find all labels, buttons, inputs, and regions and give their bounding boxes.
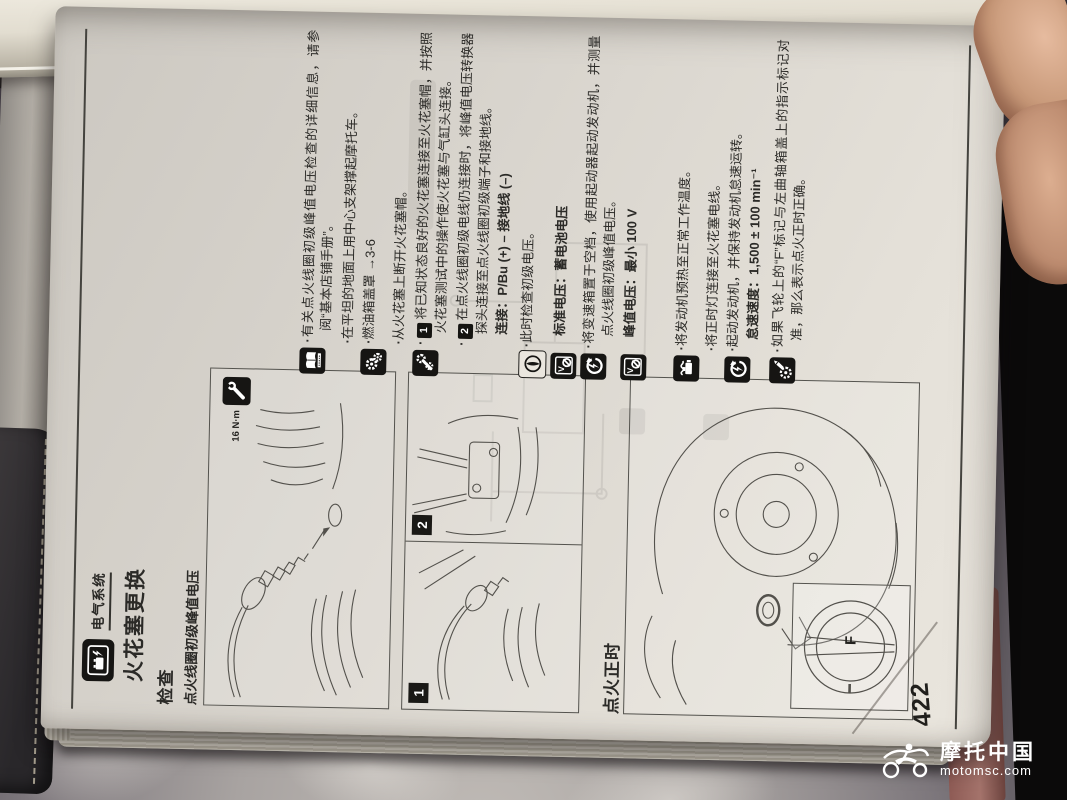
step-text: ·起动发动机，并保持发动机怠速运转。 怠速速度：1,500 ± 100 min⁻…	[724, 38, 772, 352]
step-icon-slot	[517, 347, 547, 379]
figure-spark-test-panels: 1 2	[401, 372, 586, 714]
step-icon-slot	[411, 345, 450, 377]
step-text: ·如果飞轮上的“F”标记与左曲轴箱盖上的指示标记对准，那么表示点火正时正确。	[769, 39, 812, 353]
panel-number-1: 1	[408, 683, 428, 703]
multimeter-icon: V	[550, 353, 577, 380]
step-icon-slot	[579, 348, 617, 380]
gears-icon	[360, 349, 387, 376]
procedure-step: ·燃油箱盖罩 →3-6	[359, 31, 393, 375]
figure-ref-chip: 1	[417, 322, 432, 337]
procedure-step: ·如果飞轮上的“F”标记与左曲轴箱盖上的指示标记对准，那么表示点火正时正确。	[768, 39, 812, 384]
procedure-step: ·1将已知状态良好的火花塞连接至火花塞帽，并按照火花塞测试中的操作使火花塞与气缸…	[411, 32, 457, 377]
peak-voltage-heading: 点火线圈初级峰值电压	[179, 570, 202, 705]
motomsc-logo	[880, 740, 932, 780]
watermark: 摩托中国 motomsc.com	[880, 740, 1036, 780]
step-text: ·在平坦的地面上用中心支架撑起摩托车。	[339, 30, 364, 343]
step-icon-slot	[389, 344, 408, 375]
page-bottom-rule	[955, 45, 971, 729]
spark-test-icon	[412, 350, 439, 377]
peak-voltage-adaptor-icon	[518, 350, 547, 379]
watermark-text: 摩托中国 motomsc.com	[940, 741, 1036, 778]
peak-voltage-steps: ·有关点火线圈初级峰值电压检查的详细信息，请参阅“基本店铺手册”。 ·在平坦的地…	[298, 29, 653, 380]
torque-label: 16 N·m	[230, 410, 242, 442]
manual-page-content: 电气系统 火花塞更换 检查 点火线圈初级峰值电压	[57, 13, 998, 742]
engine-warm-icon	[673, 355, 700, 382]
timing-light-icon	[769, 357, 796, 384]
step-text: ·将正时灯连接至火花塞电线。	[703, 38, 728, 351]
step-icon-slot	[359, 344, 387, 376]
step-icon-slot	[672, 350, 700, 382]
f-mark-inset: F	[790, 583, 911, 711]
figure-spark-plug-install: 16 N·m	[203, 368, 396, 710]
step-icon-slot: V	[549, 348, 577, 380]
step-icon-slot	[338, 343, 357, 374]
panel-number-2: 2	[412, 515, 432, 535]
spec-line: 峰值电压：最小 100 V	[621, 36, 646, 337]
step-text: ·从火花塞上断开火花塞帽。	[390, 31, 415, 344]
open-book: 电气系统 火花塞更换 检查 点火线圈初级峰值电压	[0, 0, 1067, 800]
procedure-step: ·有关点火线圈初级峰值电压检查的详细信息，请参阅“基本店铺手册”。	[298, 29, 342, 374]
book-icon	[299, 347, 326, 374]
photo-of-manual-page: 电气系统 火花塞更换 检查 点火线圈初级峰值电压	[0, 0, 1067, 800]
step-icon-slot	[702, 351, 721, 382]
step-text: 峰值电压：最小 100 V	[620, 36, 654, 349]
watermark-site: motomsc.com	[940, 764, 1036, 778]
procedure-step: ·将发动机预热至正常工作温度。	[672, 37, 706, 381]
page-number: 422	[905, 681, 938, 728]
svg-text:V: V	[556, 366, 566, 372]
procedure-step: ·将变速箱置于空档，使用起动器起动发动机，并测量点火线圈初级峰值电压。	[579, 35, 623, 380]
step-text: ·此时检查初级电压。	[518, 34, 554, 348]
step-icon-slot	[298, 342, 336, 374]
step-text: ·1将已知状态良好的火花塞连接至火花塞帽，并按照火花塞测试中的操作使火花塞与气缸…	[412, 32, 457, 346]
step-text: ·有关点火线圈初级峰值电压检查的详细信息，请参阅“基本店铺手册”。	[299, 29, 342, 343]
chapter-tab: 电气系统	[87, 572, 112, 630]
electrical-system-icon	[82, 639, 115, 682]
page-header: 电气系统	[82, 572, 116, 682]
step-text: ·将发动机预热至正常工作温度。	[673, 37, 707, 350]
spark-test-illustration	[402, 373, 585, 713]
torque-spec: 16 N·m	[222, 377, 251, 442]
procedure-step: V 标准电压：蓄电池电压	[549, 35, 583, 379]
step-text: ·燃油箱盖罩 →3-6	[360, 31, 394, 344]
ignition-timing-steps: ·将发动机预热至正常工作温度。 ·将正时灯连接至火花塞电线。 ·起动发动机，并保…	[672, 37, 812, 384]
f-mark-label: F	[843, 636, 860, 646]
figure-timing-inspection: F	[623, 376, 920, 720]
wrench-icon	[222, 377, 251, 406]
multimeter-icon: V	[620, 354, 647, 381]
step-text: 标准电压：蓄电池电压	[550, 35, 584, 348]
procedure-step: ·起动发动机，并保持发动机怠速运转。 怠速速度：1,500 ± 100 min⁻…	[723, 38, 772, 383]
ignition-timing-heading: 点火正时	[597, 642, 624, 715]
step-icon-slot	[452, 346, 514, 378]
page-title: 火花塞更换	[118, 567, 150, 683]
step-icon-slot: V	[619, 349, 647, 381]
procedure-step: ·2在点火线圈初级电线仍连接时，将峰值电压转换器探头连接至点火线圈初级端子和接地…	[452, 33, 521, 378]
procedure-step: V 峰值电压：最小 100 V	[619, 36, 653, 380]
inspection-heading: 检查	[151, 668, 177, 705]
spec-line: 标准电压：蓄电池电压	[551, 35, 576, 336]
starter-icon	[724, 356, 751, 383]
step-text: ·将变速箱置于空档，使用起动器起动发动机，并测量点火线圈初级峰值电压。	[580, 35, 623, 349]
procedure-step: ·此时检查初级电压。	[517, 34, 553, 379]
step-text: ·2在点火线圈初级电线仍连接时，将峰值电压转换器探头连接至点火线圈初级端子和接地…	[453, 33, 521, 347]
figure-ref-chip: 2	[458, 323, 473, 338]
svg-text:V: V	[625, 368, 635, 374]
step-icon-slot	[723, 351, 766, 383]
procedure-column: ·有关点火线圈初级峰值电压检查的详细信息，请参阅“基本店铺手册”。 ·在平坦的地…	[298, 29, 815, 384]
step-icon-slot	[768, 352, 806, 384]
starter-icon	[580, 353, 607, 380]
f-mark-illustration	[791, 584, 910, 710]
watermark-brand: 摩托中国	[940, 741, 1036, 764]
